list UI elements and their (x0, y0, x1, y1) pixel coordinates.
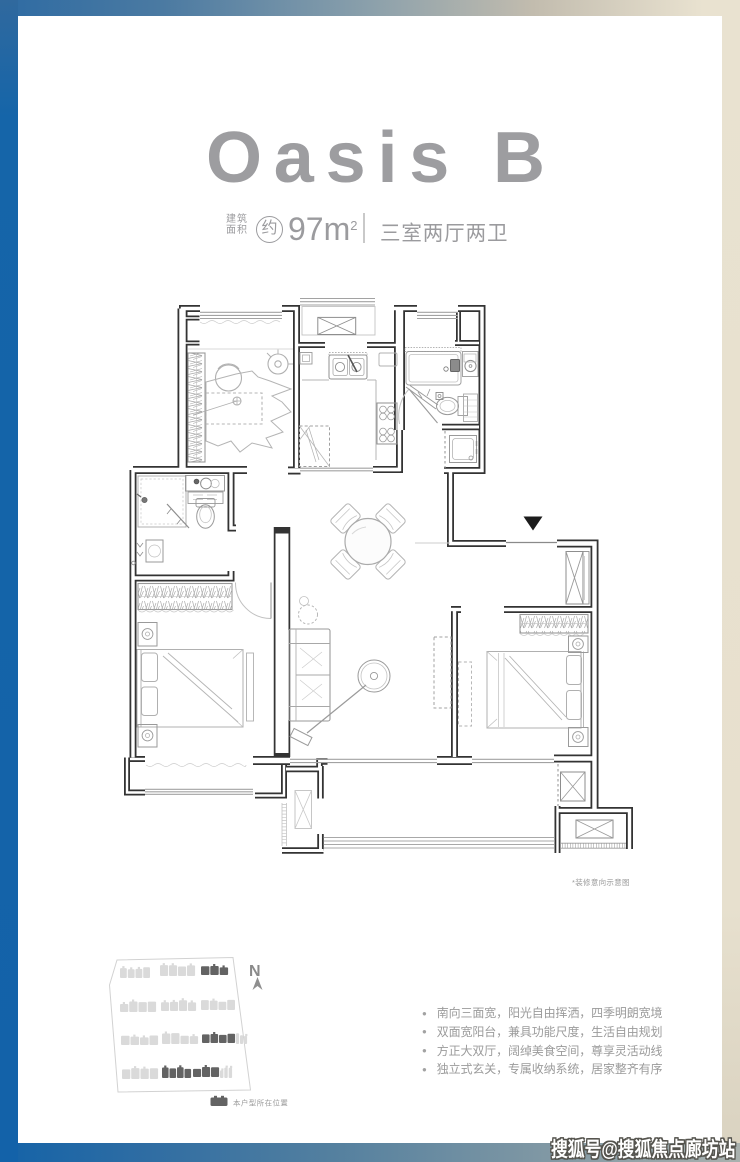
svg-text:*装修意向示意图: *装修意向示意图 (572, 877, 630, 887)
svg-text:本户型所在位置: 本户型所在位置 (233, 1098, 288, 1108)
svg-text:N: N (249, 963, 261, 980)
